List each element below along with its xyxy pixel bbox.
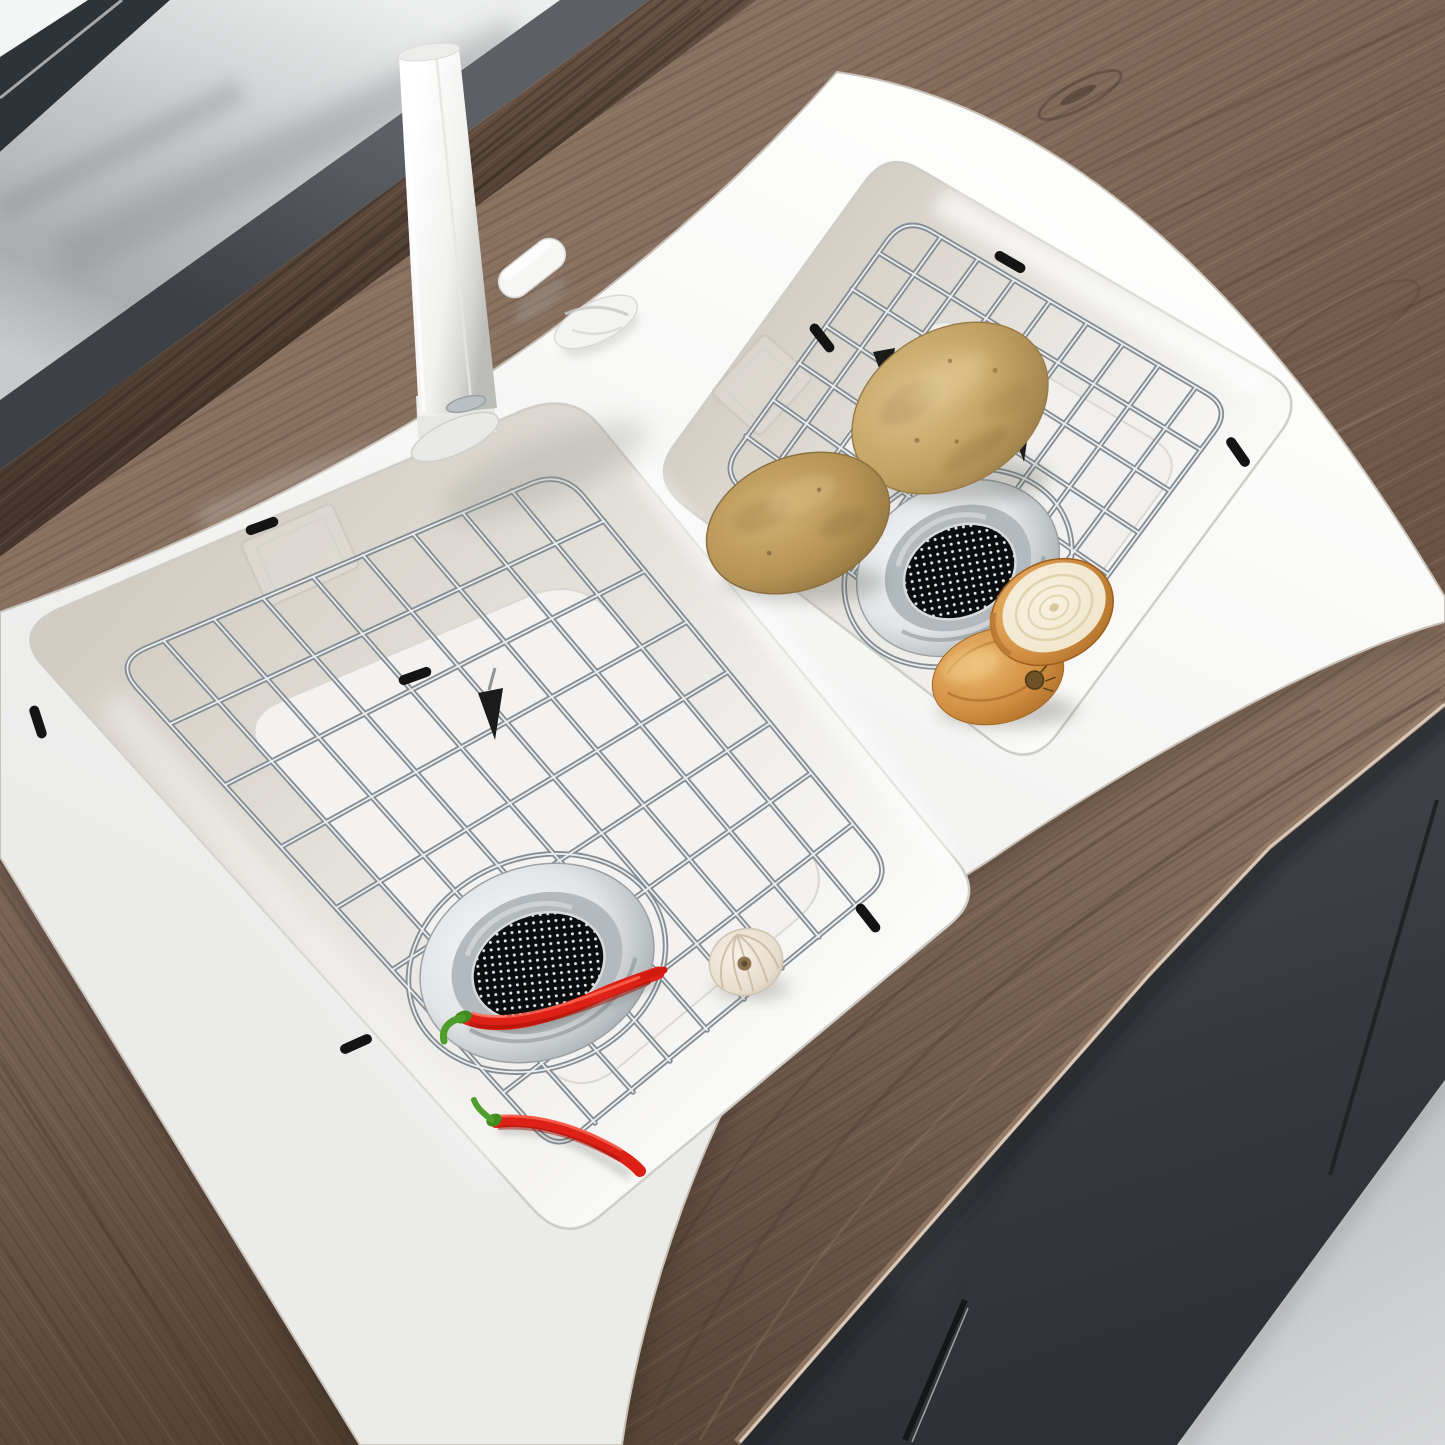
scene-canvas	[0, 0, 1445, 1445]
product-photo-kitchen-sink	[0, 0, 1445, 1445]
